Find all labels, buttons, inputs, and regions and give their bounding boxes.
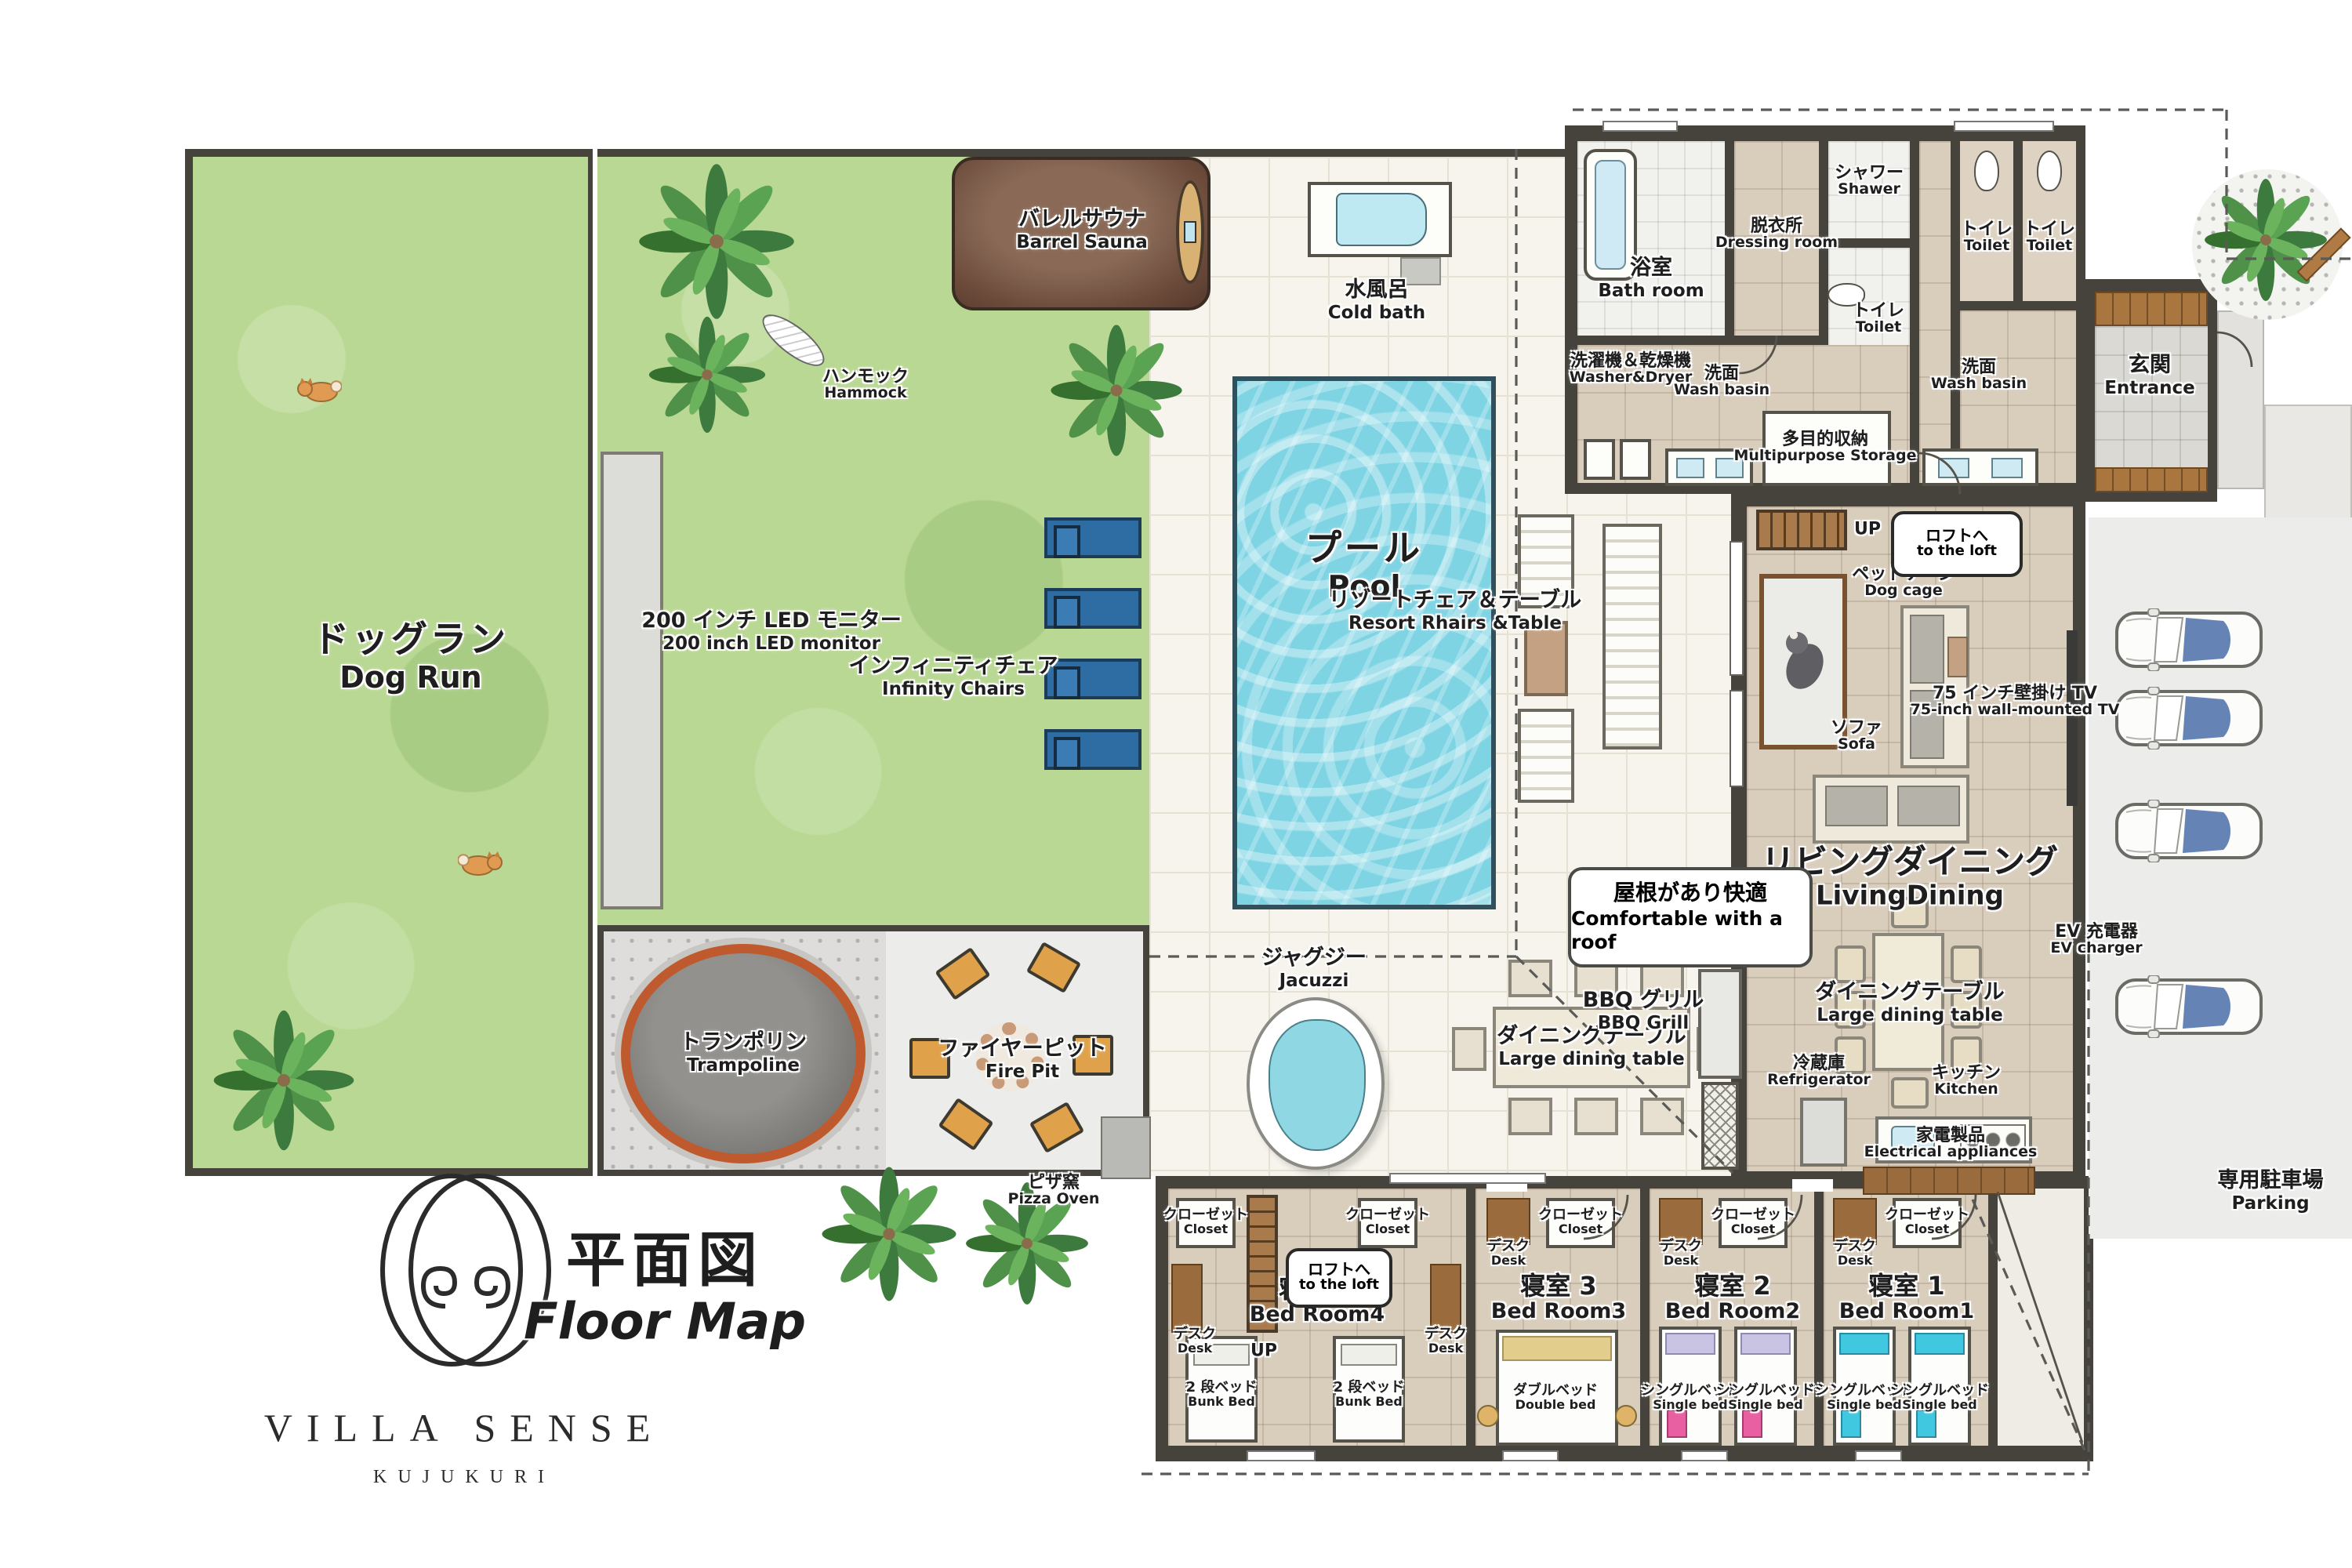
blanket-pink — [1742, 1410, 1762, 1438]
outdoor-chair — [1452, 1027, 1486, 1071]
chair-pillow — [1054, 737, 1080, 770]
bbq-label: BBQ グリルBBQ Grill — [1583, 989, 1704, 1033]
parking-label: 専用駐車場Parking — [2218, 1170, 2324, 1214]
bed-pillow — [1341, 1344, 1397, 1366]
bedroom3-label: 寝室 3Bed Room3 — [1491, 1272, 1626, 1324]
closet-label-br2: クローゼットCloset — [1711, 1208, 1795, 1238]
monitor-screen — [601, 452, 663, 909]
bbq-grill — [1698, 969, 1742, 1079]
bunk-bed-label-1: 2 段ベッドBunk Bed — [1186, 1381, 1258, 1410]
palm-tree — [1047, 321, 1185, 459]
bunk-bed-label-2: 2 段ベッドBunk Bed — [1334, 1381, 1405, 1410]
dining-chair — [1835, 946, 1866, 983]
nightstand — [1615, 1405, 1637, 1427]
tv-label: 75 インチ壁掛け TV75-inch wall-mounted TV — [1911, 684, 2120, 720]
outdoor-chair — [1508, 960, 1552, 997]
window — [1602, 121, 1678, 132]
double-bed-label: ダブルベッドDouble bed — [1513, 1384, 1598, 1414]
sofa-cushion — [1897, 786, 1960, 826]
outdoor-chair — [1640, 1098, 1684, 1135]
fire-pit-label: ファイヤーピットFire Pit — [938, 1038, 1106, 1082]
dining-chair — [1891, 1077, 1929, 1109]
window — [1681, 1450, 1728, 1461]
entrance-label: 玄関Entrance — [2104, 354, 2195, 398]
sofa-base — [1813, 775, 1969, 844]
dining-chair — [1951, 946, 1982, 983]
toilet-bowl — [1974, 151, 1999, 191]
sink — [1938, 458, 1969, 478]
monitor-label: 200 インチ LED モニター200 inch LED monitor — [641, 610, 902, 654]
desk-br3 — [1486, 1198, 1530, 1245]
loft-balloon-living: ロフトへ to the loft — [1891, 511, 2023, 577]
outdoor-chair — [1508, 1098, 1552, 1135]
palm-tree — [818, 1163, 960, 1305]
palm-tree — [646, 314, 768, 436]
outdoor-chair — [1574, 1098, 1618, 1135]
sofa-side-table — [1947, 637, 1968, 677]
desk-label-br3: デスクDesk — [1487, 1240, 1530, 1269]
trampoline-label: トランポリンTrampoline — [680, 1032, 807, 1076]
pillow-cyan — [1915, 1333, 1965, 1355]
side-room-void — [1998, 1189, 2084, 1446]
dining-table-label: ダイニングテーブルLarge dining table — [1815, 982, 2004, 1025]
closet-label-br4r: クローゼットCloset — [1345, 1208, 1430, 1238]
desk-label-br2: デスクDesk — [1660, 1240, 1702, 1269]
pool — [1232, 376, 1496, 909]
closet-label-br3: クローゼットCloset — [1538, 1208, 1623, 1238]
bedroom1-label: 寝室 1Bed Room1 — [1839, 1272, 1974, 1324]
sliding-door — [1730, 541, 1744, 676]
sofa-cushion — [1910, 615, 1944, 684]
bedroom2-label: 寝室 2Bed Room2 — [1665, 1272, 1800, 1324]
entrance-deck-bottom — [2095, 467, 2208, 492]
hammock-label: ハンモックHammock — [822, 368, 909, 404]
window — [1247, 1450, 1316, 1461]
pizza-oven-label: ピザ窯Pizza Oven — [1008, 1174, 1100, 1210]
shiba-dog — [458, 847, 505, 881]
page-title: 平面図 Floor Map — [524, 1228, 806, 1351]
resort-lounger-3 — [1602, 524, 1662, 750]
desk-label-br4r: デスクDesk — [1425, 1327, 1467, 1357]
double-bed-pillowband — [1502, 1336, 1612, 1361]
infinity-chair-1 — [1044, 517, 1142, 558]
bathtub-water — [1595, 160, 1626, 270]
pillow-cyan — [1839, 1333, 1889, 1355]
jacuzzi-label: ジャグジーJacuzzi — [1261, 947, 1367, 991]
desk-br1 — [1833, 1198, 1877, 1245]
infinity-chair-3 — [1044, 659, 1142, 699]
sliding-door — [1730, 690, 1744, 787]
resort-lounger-2 — [1518, 709, 1574, 803]
loft-en: to the loft — [1917, 545, 1997, 561]
parked-car-3 — [2114, 800, 2264, 862]
cold-bath-tub — [1308, 182, 1452, 257]
roof-note-en: Comfortable with a roof — [1571, 907, 1809, 954]
palm-tree — [210, 1007, 358, 1154]
desk-label-br1: デスクDesk — [1834, 1240, 1876, 1269]
desk-br4-right — [1430, 1264, 1461, 1333]
entrance-deck-top — [2095, 292, 2208, 326]
single-bed-label-br1b: シングルベッドSingle bed — [1890, 1384, 1989, 1414]
kitchen-label: キッチンKitchen — [1932, 1064, 2001, 1100]
closet-label-br1: クローゼットCloset — [1885, 1208, 1969, 1238]
pillow-lavender — [1740, 1333, 1791, 1355]
cold-bath-water — [1336, 193, 1427, 246]
window — [1855, 1450, 1902, 1461]
fridge-label: 冷蔵庫Refrigerator — [1767, 1054, 1871, 1091]
entrance-pad — [2264, 405, 2352, 521]
toilet-b-label: トイレToilet — [2024, 220, 2075, 256]
jacuzzi-water — [1269, 1019, 1366, 1151]
wash-basin-right-label: 洗面Wash basin — [1931, 358, 2027, 394]
roof-note-jp: 屋根があり快適 — [1613, 880, 1767, 907]
dressing-room-label: 脱衣所Dressing room — [1715, 217, 1838, 253]
bath-room-label: 浴室Bath room — [1598, 257, 1704, 301]
blanket-cyan — [1916, 1410, 1936, 1438]
sofa-label: ソファSofa — [1831, 719, 1882, 755]
up-label-living: UP — [1854, 521, 1881, 540]
toilet-a-label: トイレToilet — [1961, 220, 2013, 256]
desk-label-br4l: デスクDesk — [1174, 1327, 1216, 1357]
loft-jp: ロフトへ — [1308, 1261, 1370, 1279]
window — [1954, 121, 2054, 132]
logo-sub: KUJUKURI — [373, 1465, 555, 1489]
washer-dryer — [1584, 439, 1615, 480]
floor-map-canvas: 屋根があり快適 Comfortable with a roof — [0, 0, 2352, 1568]
window — [1502, 1450, 1559, 1461]
parked-car-2 — [2114, 687, 2264, 750]
jacuzzi — [1247, 997, 1385, 1170]
blanket-cyan — [1841, 1410, 1861, 1438]
dog-in-cage — [1778, 626, 1831, 695]
shower-label: シャワーShawer — [1835, 164, 1904, 200]
infinity-chairs-label: インフィニティチェアInfinity Chairs — [848, 655, 1058, 699]
parked-car-4 — [2114, 975, 2264, 1038]
desk-br4-left — [1171, 1264, 1203, 1333]
wash-counter-right — [1922, 448, 2038, 486]
door-gap — [1792, 1179, 1833, 1192]
loft-stairs — [1756, 510, 1847, 550]
loft-en: to the loft — [1299, 1279, 1379, 1294]
entrance-approach — [2217, 310, 2264, 489]
window — [1389, 1173, 1546, 1184]
palm-tree — [635, 160, 798, 323]
wash-basin-left-label: 洗面Wash basin — [1674, 365, 1769, 401]
sink — [1676, 458, 1704, 478]
loft-jp: ロフトへ — [1926, 528, 1988, 545]
sink — [1991, 458, 2023, 478]
refrigerator — [1800, 1098, 1847, 1167]
bbq-grill-grate — [1701, 1082, 1739, 1170]
sauna-door — [1176, 180, 1204, 284]
desk-br2 — [1659, 1198, 1703, 1245]
ev-charger-label: EV 充電器EV charger — [2050, 923, 2142, 959]
chair-pillow — [1054, 525, 1080, 558]
blanket-pink — [1667, 1410, 1687, 1438]
toilet-small-label: トイレToilet — [1853, 302, 1904, 338]
toilet-bowl — [2037, 151, 2062, 191]
logo-brand: VILLA SENSE — [264, 1408, 665, 1452]
storage-label: 多目的収納Multipurpose Storage — [1733, 430, 1916, 466]
up-label-br4: UP — [1250, 1342, 1277, 1362]
sofa-cushion — [1825, 786, 1888, 826]
loft-balloon-br4: ロフトへ to the loft — [1286, 1248, 1392, 1308]
hallway — [1919, 141, 1951, 483]
nightstand — [1477, 1405, 1499, 1427]
closet-label-br4l: クローゼットCloset — [1163, 1208, 1248, 1238]
parked-car-1 — [2114, 608, 2264, 671]
chair-pillow — [1054, 596, 1080, 629]
pizza-oven — [1101, 1116, 1151, 1179]
resort-set-label: リゾートチェア＆テーブルResort Rhairs &Table — [1329, 590, 1581, 633]
roof-note-box: 屋根があり快適 Comfortable with a roof — [1568, 867, 1813, 967]
sauna-door-window — [1184, 221, 1196, 243]
appliance-shelf — [1863, 1167, 2035, 1195]
palm-tree — [2201, 176, 2330, 304]
infinity-chair-2 — [1044, 588, 1142, 629]
appliances-label: 家電製品Electrical appliances — [1864, 1127, 2038, 1163]
pillow-lavender — [1665, 1333, 1715, 1355]
barrel-sauna-label: バレルサウナBarrel Sauna — [1016, 209, 1148, 252]
shiba-dog — [295, 373, 342, 408]
single-bed-label-br2b: シングルベッドSingle bed — [1716, 1384, 1815, 1414]
washer-dryer — [1620, 439, 1651, 480]
cold-bath-label: 水風呂Cold bath — [1328, 279, 1425, 323]
dog-run-label: ドッグランDog Run — [313, 622, 509, 695]
infinity-chair-4 — [1044, 729, 1142, 770]
